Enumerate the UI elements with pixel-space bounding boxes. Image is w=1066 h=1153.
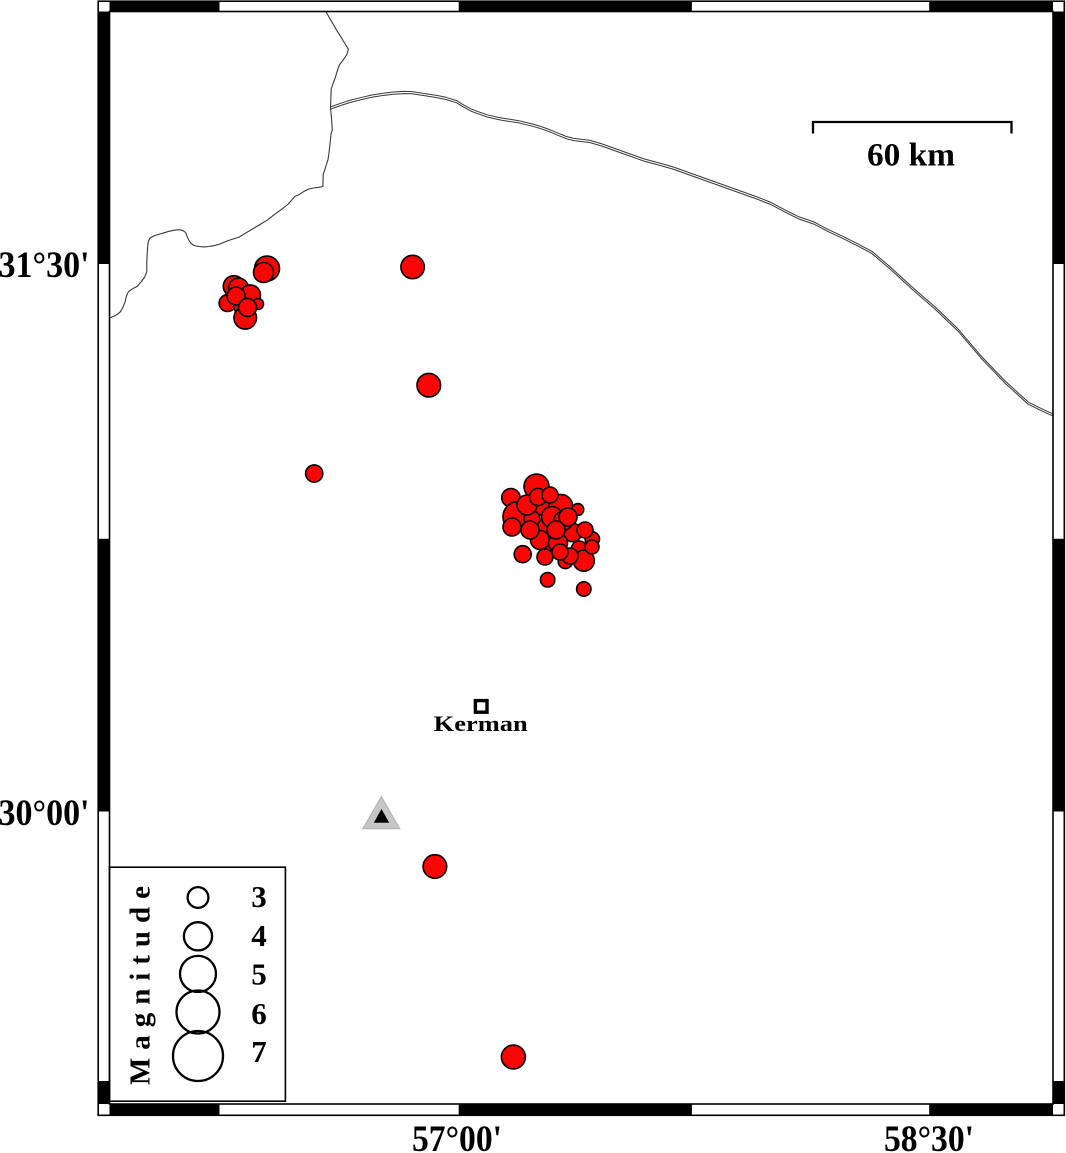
- svg-text:4: 4: [251, 918, 267, 953]
- svg-text:5: 5: [251, 957, 267, 992]
- svg-text:3: 3: [251, 879, 267, 914]
- svg-text:60 km: 60 km: [867, 138, 955, 174]
- svg-text:Kerman: Kerman: [434, 711, 528, 736]
- svg-text:58°30': 58°30': [884, 1119, 974, 1153]
- svg-text:31°30': 31°30': [0, 245, 90, 286]
- svg-text:30°00': 30°00': [0, 793, 90, 834]
- svg-text:57°00': 57°00': [412, 1119, 502, 1153]
- svg-text:7: 7: [251, 1034, 267, 1069]
- svg-text:6: 6: [251, 996, 267, 1031]
